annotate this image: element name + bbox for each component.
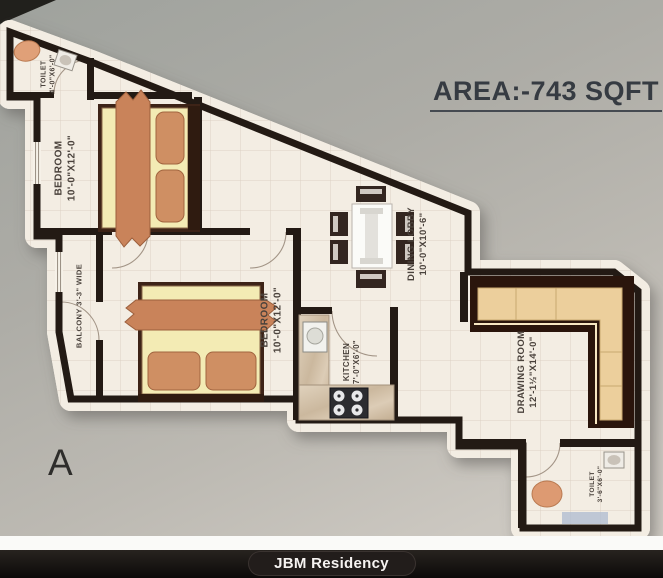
bath-mat (562, 512, 608, 524)
sink-icon (604, 452, 624, 468)
area-title: AREA:-743 SQFT (430, 76, 662, 112)
floor-plan-photo: TOILET 4'-0"X6'-0" BEDROOM 10'-0"X12'-0"… (0, 0, 663, 578)
room-name: TOILET (40, 54, 49, 93)
room-dims: 3'-3" WIDE (74, 264, 83, 306)
room-dims: 7'-0"X6'-0" (352, 340, 362, 384)
sheet-marker: A (48, 442, 73, 484)
bed-icon (98, 90, 200, 247)
room-name: TOILET (589, 466, 597, 503)
room-dims: 3'-6"X6'-0" (597, 466, 605, 503)
room-name: BEDROOM (54, 135, 67, 201)
room-dims: 10'-0"X12'-0" (66, 135, 79, 201)
room-dims: 12'-1½"X14'-0" (528, 331, 540, 414)
room-name: BEDROOM (260, 287, 273, 353)
stove-icon (330, 388, 368, 418)
brand-badge: JBM Residency (248, 551, 416, 576)
room-name: DINING LOBBY (406, 207, 418, 281)
footer-white-strip (0, 536, 663, 550)
room-name: BALCONY (74, 308, 83, 348)
room-name: KITCHEN (342, 340, 352, 384)
room-dims: 10'-0"X12'-0" (272, 287, 285, 353)
bed-icon (125, 282, 277, 402)
wc-icon (532, 481, 562, 507)
room-dims: 10'-0"X10'-6" (418, 207, 430, 281)
room-dims: 4'-0"X6'-0" (49, 54, 58, 93)
room-name: DRAWING ROOM (516, 331, 528, 414)
sink-icon (303, 322, 327, 352)
